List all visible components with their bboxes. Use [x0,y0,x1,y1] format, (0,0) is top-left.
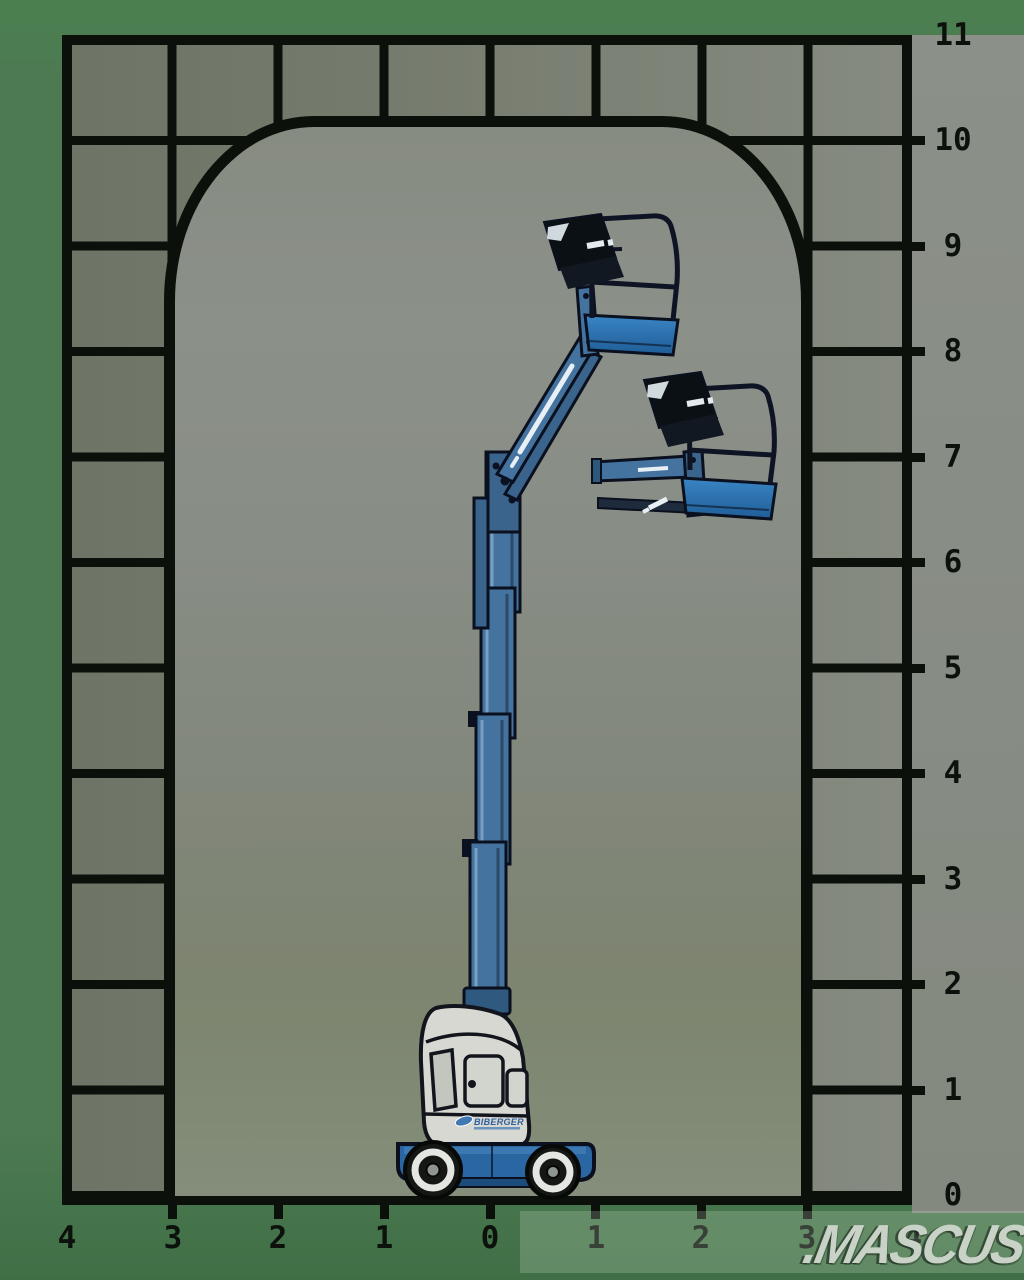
y-axis-label: 10 [924,121,982,159]
axis-tick [380,1205,389,1219]
y-axis-label: 8 [924,332,982,370]
working-envelope-boundary [164,116,812,1196]
x-axis-label: 3 [143,1218,203,1258]
y-axis-gutter [912,35,1024,1213]
x-axis-label: 1 [354,1218,414,1258]
x-axis-label: 2 [248,1218,308,1258]
y-axis-label: 11 [924,16,982,54]
axis-tick [486,1205,495,1219]
y-axis-label: 9 [924,227,982,265]
y-axis-label: 2 [924,965,982,1003]
y-axis-label: 7 [924,438,982,476]
watermark: .MASCUS [708,1216,1024,1272]
x-axis-label: 4 [37,1218,97,1258]
y-axis-label: 0 [924,1176,982,1214]
y-axis-label: 4 [924,754,982,792]
envelope-diagram: 11 10 9 8 7 6 5 4 3 2 1 0 4 3 2 1 0 1 2 … [0,0,1024,1280]
y-axis-label: 6 [924,543,982,581]
axis-tick [168,1205,177,1219]
y-axis-label: 5 [924,649,982,687]
y-axis-label: 3 [924,860,982,898]
x-axis-label: 0 [460,1218,520,1258]
axis-tick [274,1205,283,1219]
y-axis-label: 1 [924,1071,982,1109]
